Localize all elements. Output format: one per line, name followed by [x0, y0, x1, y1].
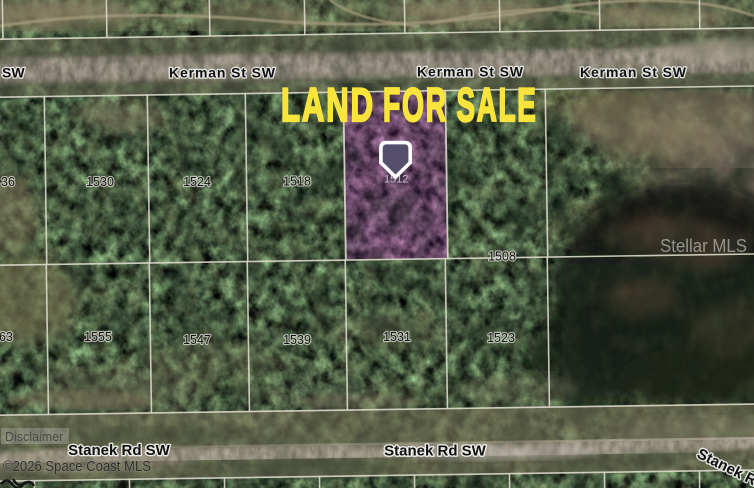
- svg-text:1524: 1524: [183, 175, 211, 189]
- svg-text:Disclaimer: Disclaimer: [5, 430, 63, 444]
- svg-text:1530: 1530: [86, 175, 114, 189]
- svg-text:1555: 1555: [84, 330, 112, 344]
- svg-text:63: 63: [0, 330, 13, 344]
- svg-text:1547: 1547: [183, 333, 211, 347]
- svg-text:Stanek Rd SW: Stanek Rd SW: [384, 443, 487, 460]
- svg-text:36: 36: [1, 175, 15, 189]
- svg-text:SALE: SALE: [457, 78, 538, 131]
- svg-text:Kerman St SW: Kerman St SW: [169, 65, 276, 81]
- svg-text:Stellar MLS: Stellar MLS: [660, 236, 747, 256]
- svg-text:1508: 1508: [488, 250, 516, 264]
- svg-text:Stanek Rd SW: Stanek Rd SW: [68, 442, 171, 459]
- svg-text:1539: 1539: [283, 333, 311, 347]
- svg-text:©2026 Space Coast MLS: ©2026 Space Coast MLS: [3, 459, 151, 475]
- svg-text:1518: 1518: [283, 175, 311, 189]
- svg-text:1531: 1531: [383, 330, 411, 344]
- svg-text:Kerman St SW: Kerman St SW: [580, 64, 687, 80]
- svg-text:LAND: LAND: [281, 78, 375, 131]
- svg-text:FOR: FOR: [383, 78, 448, 131]
- svg-text:1523: 1523: [487, 331, 515, 345]
- svg-text:SW: SW: [2, 65, 25, 81]
